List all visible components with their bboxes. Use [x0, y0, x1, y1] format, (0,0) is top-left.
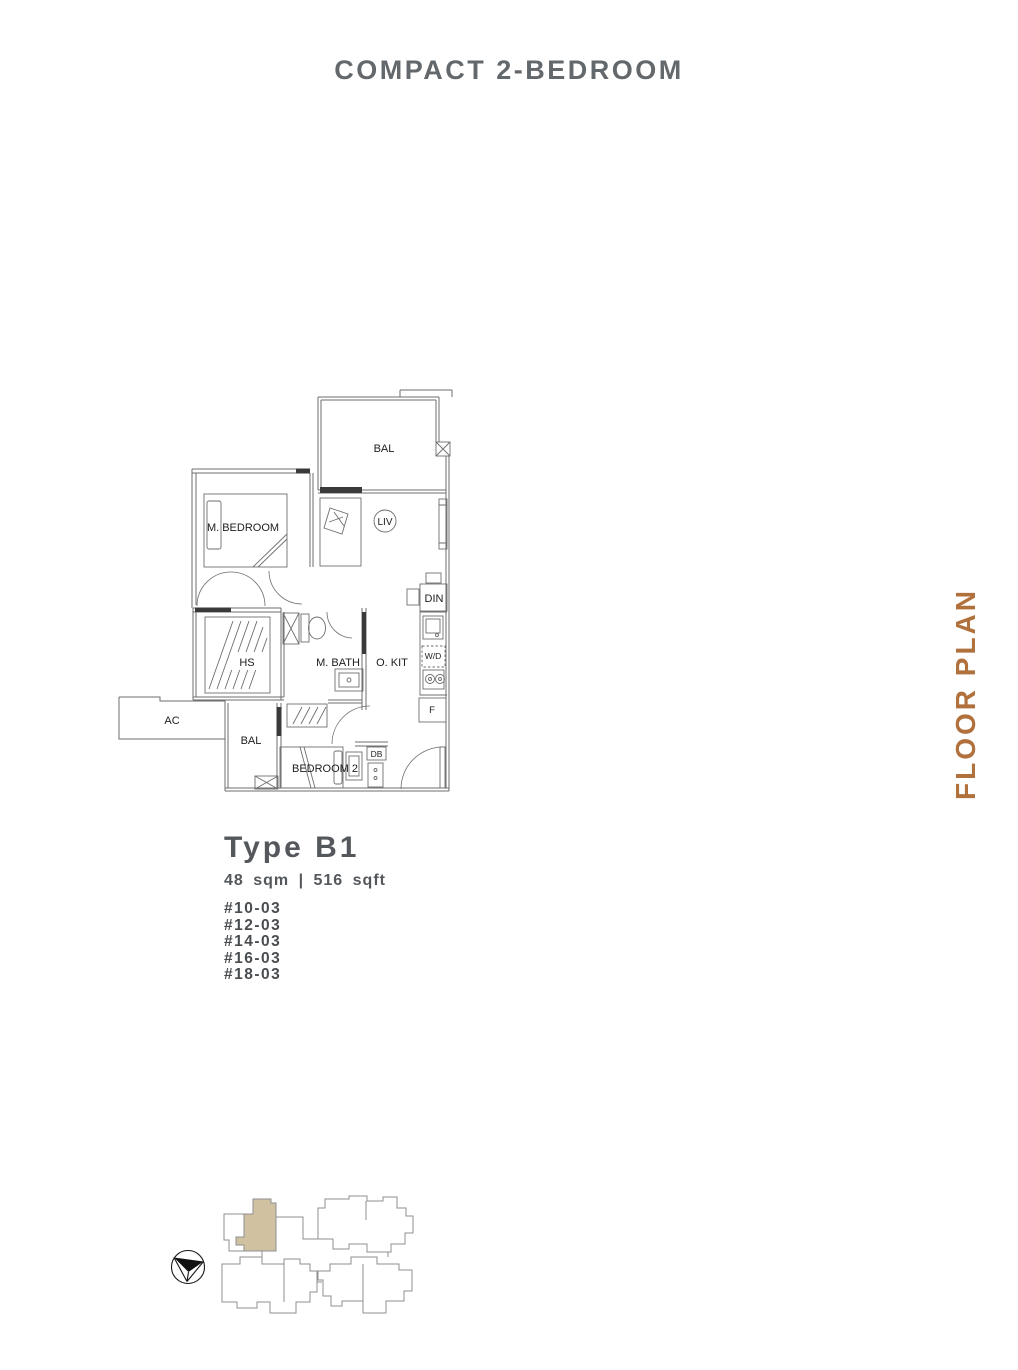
- household-shelter: [205, 617, 270, 693]
- room-label-bedroom2: BEDROOM 2: [292, 763, 358, 775]
- floor-plan-page: COMPACT 2-BEDROOM FLOOR PLAN: [0, 0, 1018, 1370]
- unit-info: Type B1 48 sqm | 516 sqft #10-03 #12-03 …: [224, 831, 386, 984]
- key-plan: [160, 1185, 415, 1330]
- window-marker-icon: [436, 442, 450, 456]
- room-label-m-bedroom: M. BEDROOM: [207, 522, 279, 534]
- side-label-floor-plan: FLOOR PLAN: [950, 574, 980, 814]
- toilet-icon: [301, 614, 326, 642]
- room-label-bal-bottom: BAL: [241, 735, 262, 747]
- unit-number: #12-03: [224, 918, 386, 935]
- shower-icon: [283, 613, 299, 644]
- unit-number: #14-03: [224, 934, 386, 951]
- dining-table: [407, 573, 447, 611]
- sofa: [320, 498, 361, 566]
- floor-plan-drawing: BAL M. BEDROOM LIV DIN W/D F HS M. BATH …: [110, 383, 458, 795]
- walls: [119, 390, 452, 791]
- wardrobe: [287, 704, 327, 727]
- room-label-din: DIN: [425, 593, 444, 605]
- building-outlines: [222, 1196, 413, 1313]
- unit-area: 48 sqm | 516 sqft: [224, 872, 386, 890]
- door-swings: [197, 571, 445, 789]
- basin-icon: [335, 669, 363, 691]
- stove-icon: [423, 670, 445, 689]
- room-label-bal-top: BAL: [374, 443, 395, 455]
- window-marker-icon: [255, 776, 278, 789]
- room-label-m-bath: M. BATH: [316, 657, 360, 669]
- room-label-wd: W/D: [425, 651, 442, 661]
- unit-number-list: #10-03 #12-03 #14-03 #16-03 #18-03: [224, 901, 386, 984]
- kitchen-sink-icon: [423, 616, 443, 639]
- highlighted-unit: [236, 1199, 276, 1251]
- room-label-liv: LIV: [377, 517, 392, 528]
- room-label-db: DB: [371, 749, 383, 759]
- room-label-ac: AC: [164, 715, 179, 727]
- page-title: COMPACT 2-BEDROOM: [0, 55, 1018, 86]
- unit-number: #18-03: [224, 967, 386, 984]
- bathroom-fixtures: [283, 613, 363, 691]
- room-label-o-kit: O. KIT: [376, 657, 408, 669]
- room-label-hs: HS: [239, 657, 254, 669]
- unit-type-label: Type B1: [224, 831, 386, 865]
- unit-number: #16-03: [224, 951, 386, 968]
- room-label-fridge: F: [429, 705, 435, 716]
- unit-number: #10-03: [224, 901, 386, 918]
- north-arrow-icon: [172, 1251, 205, 1284]
